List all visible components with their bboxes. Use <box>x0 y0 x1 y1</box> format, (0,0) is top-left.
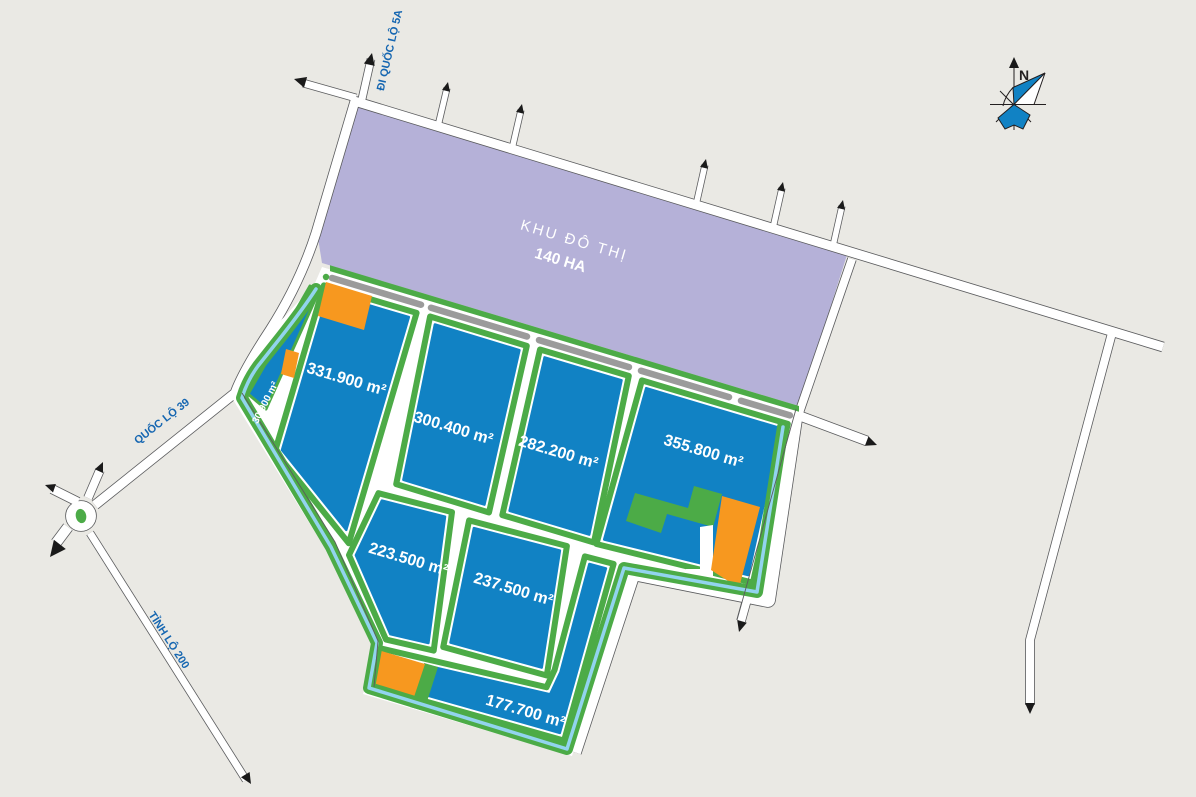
svg-text:N: N <box>1019 67 1029 83</box>
